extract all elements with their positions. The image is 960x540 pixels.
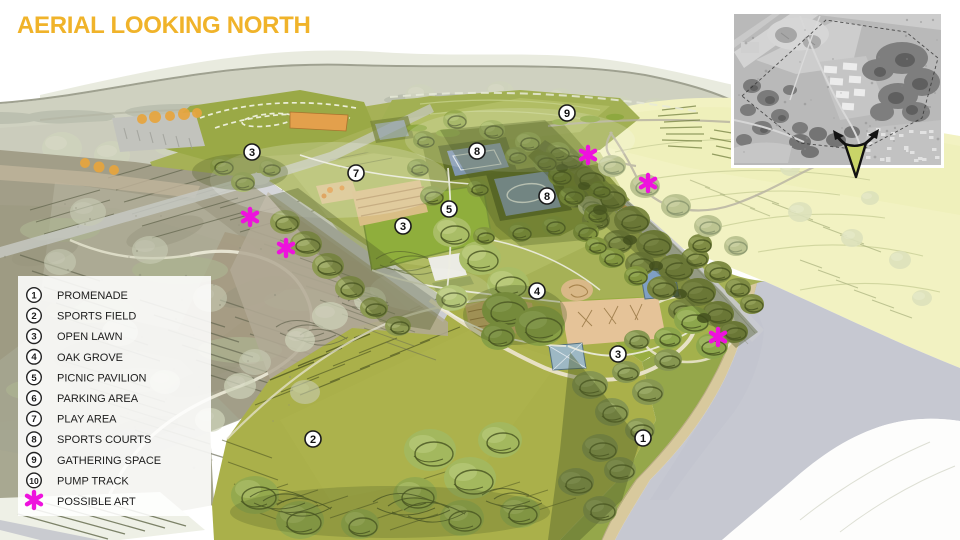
svg-text:8: 8 [544, 191, 550, 203]
svg-text:5: 5 [31, 373, 37, 384]
svg-text:1: 1 [640, 433, 646, 445]
svg-text:7: 7 [353, 168, 359, 180]
svg-text:10: 10 [29, 476, 39, 486]
svg-text:3: 3 [615, 349, 621, 361]
svg-text:GATHERING SPACE: GATHERING SPACE [57, 455, 161, 467]
svg-text:3: 3 [249, 147, 255, 159]
svg-text:9: 9 [564, 108, 570, 120]
svg-text:9: 9 [31, 455, 36, 466]
svg-text:5: 5 [446, 204, 452, 216]
svg-text:3: 3 [400, 221, 406, 233]
svg-text:SPORTS FIELD: SPORTS FIELD [57, 311, 136, 323]
svg-text:OAK GROVE: OAK GROVE [57, 352, 123, 364]
svg-text:SPORTS COURTS: SPORTS COURTS [57, 434, 151, 446]
svg-text:OPEN LAWN: OPEN LAWN [57, 331, 123, 343]
svg-text:8: 8 [474, 146, 480, 158]
svg-text:POSSIBLE ART: POSSIBLE ART [57, 496, 136, 508]
svg-text:PUMP TRACK: PUMP TRACK [57, 475, 129, 487]
svg-text:2: 2 [310, 434, 316, 446]
svg-text:8: 8 [31, 435, 36, 446]
svg-text:4: 4 [534, 286, 541, 298]
svg-text:6: 6 [31, 393, 36, 404]
svg-text:PICNIC PAVILION: PICNIC PAVILION [57, 372, 147, 384]
svg-text:1: 1 [31, 290, 37, 301]
svg-text:7: 7 [31, 414, 36, 425]
svg-text:PARKING AREA: PARKING AREA [57, 393, 139, 405]
svg-text:PROMENADE: PROMENADE [57, 290, 128, 302]
svg-text:2: 2 [31, 311, 36, 322]
svg-text:AERIAL LOOKING NORTH: AERIAL LOOKING NORTH [17, 12, 311, 39]
svg-text:4: 4 [31, 352, 37, 363]
svg-text:3: 3 [31, 332, 36, 343]
svg-text:PLAY AREA: PLAY AREA [57, 414, 117, 426]
